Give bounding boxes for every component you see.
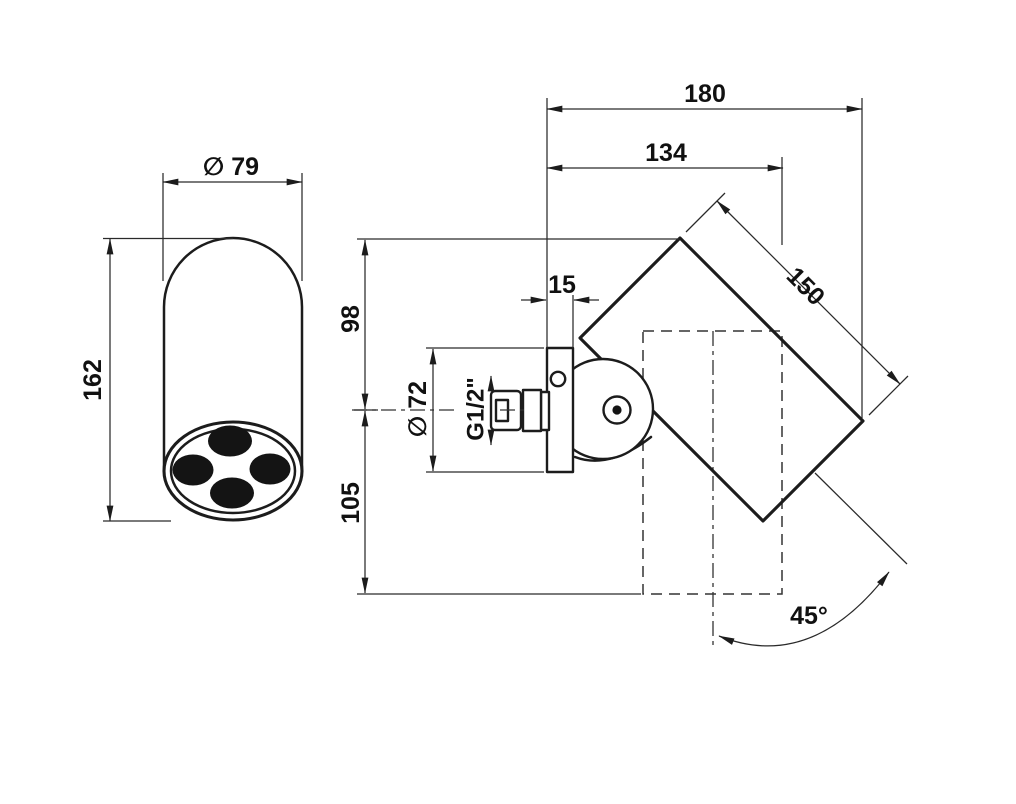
nozzle-left <box>173 455 214 486</box>
wall-plate <box>547 348 573 472</box>
dim-body-length-label: 150 <box>781 262 830 311</box>
drawing-area: ∅ 79 162 <box>0 0 1016 804</box>
dim-front-height-label: 162 <box>79 359 107 401</box>
dim-depth-to-body: 134 <box>547 139 783 245</box>
thread-callout-label: G1/2" <box>462 377 489 440</box>
connector-nut <box>523 390 541 431</box>
dim-swivel-angle: 45° <box>719 473 907 646</box>
nozzle-top <box>208 426 252 457</box>
dim-body-length: 150 <box>686 193 908 415</box>
side-view: 180 134 15 98 105 <box>337 80 908 650</box>
dim-front-diameter: ∅ 79 <box>163 153 302 281</box>
thread-callout: G1/2" <box>462 376 491 445</box>
dim-below-axis-label: 105 <box>337 482 365 524</box>
dim-plate-thickness-label: 15 <box>548 271 576 299</box>
pivot-center <box>612 405 621 414</box>
dim-swivel-angle-label: 45° <box>790 602 828 630</box>
dim-above-axis-label: 98 <box>337 305 365 333</box>
dim-total-depth-label: 180 <box>684 80 726 108</box>
dim-plate-thickness: 15 <box>521 271 599 348</box>
nozzle-right <box>250 454 291 485</box>
front-view: ∅ 79 162 <box>79 153 302 521</box>
dim-depth-to-body-label: 134 <box>645 139 687 167</box>
technical-drawing-canvas: ∅ 79 162 <box>0 0 1016 804</box>
plate-screw-hole <box>551 372 565 386</box>
dim-front-diameter-label: ∅ 79 <box>203 153 259 181</box>
dim-plate-diameter-label: ∅ 72 <box>404 381 432 437</box>
nozzle-bottom <box>210 478 254 509</box>
